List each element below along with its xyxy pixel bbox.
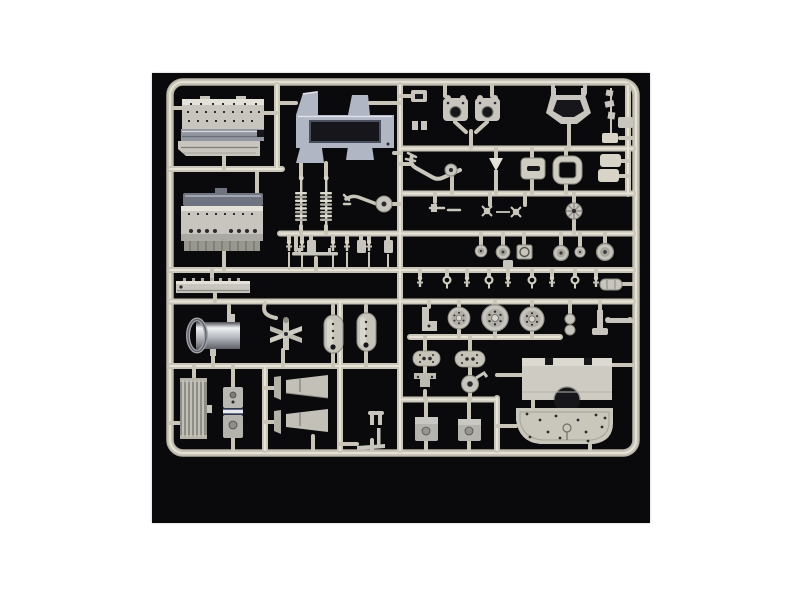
arm-pulley-part xyxy=(462,373,488,393)
engine-block-half-a xyxy=(178,96,264,156)
fan-impeller-part xyxy=(270,317,302,350)
pulley-row xyxy=(475,244,613,269)
hanging-fitting-row xyxy=(417,276,622,290)
sprue-photo xyxy=(152,73,650,523)
engine-block-half-b xyxy=(181,188,263,251)
bent-tube-part xyxy=(406,153,460,179)
coil-spring-parts xyxy=(295,176,332,230)
square-ring-part xyxy=(556,159,579,181)
funnel-part xyxy=(489,158,503,180)
bell-crank-lever-part xyxy=(344,195,392,212)
yoke-bracket-part xyxy=(414,373,436,387)
valve-pin-row xyxy=(286,240,393,253)
small-linkage-row xyxy=(430,203,582,219)
battery-box-parts xyxy=(415,417,481,441)
page: { "image": { "kind": "photograph", "alt"… xyxy=(0,0,800,600)
capsule-tank-parts xyxy=(324,313,376,353)
slotted-box-part xyxy=(521,158,545,179)
photo-area xyxy=(152,73,650,523)
valve-box-column-part xyxy=(223,387,243,438)
linkage-rod-part xyxy=(292,248,338,256)
cylinder-tank-part xyxy=(188,314,240,356)
spine-bracket-part xyxy=(411,90,427,130)
riveted-plate-parts xyxy=(413,351,485,367)
curved-tray-part xyxy=(516,408,613,444)
gearbox-cover-parts xyxy=(443,95,500,121)
mud-flap-parts xyxy=(274,375,328,434)
radiator-part xyxy=(180,378,212,439)
tow-bar-part xyxy=(546,88,591,124)
wide-tab xyxy=(618,117,633,128)
chassis-cradle-part xyxy=(280,91,400,163)
finned-bar-part xyxy=(176,278,250,293)
fender-panel-part xyxy=(522,358,612,413)
right-column-boxes xyxy=(598,90,621,182)
